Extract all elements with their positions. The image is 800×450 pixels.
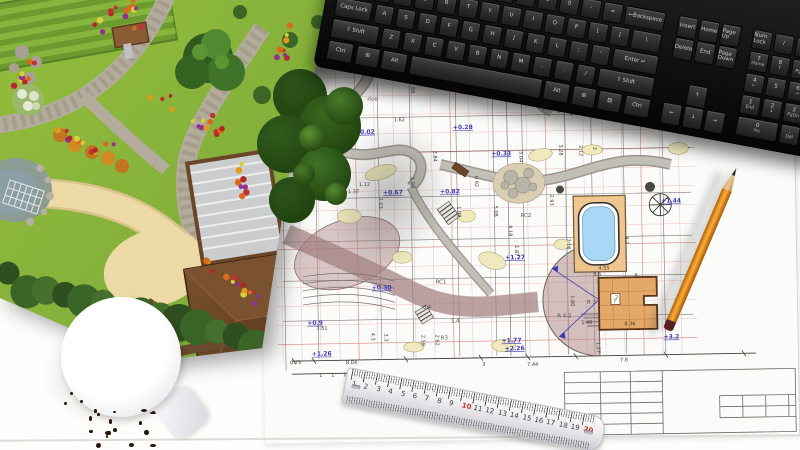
flower bbox=[191, 119, 195, 123]
flower bbox=[256, 294, 260, 298]
flower bbox=[210, 269, 215, 274]
elevation-label: +0.28 bbox=[453, 124, 473, 131]
flower bbox=[252, 301, 257, 306]
keyboard-key: A bbox=[373, 4, 396, 27]
keyboard-key: V bbox=[444, 39, 467, 62]
dimension-label: 7.44 bbox=[527, 362, 538, 368]
room-number: 7 bbox=[613, 298, 616, 304]
ruler-number: 8 bbox=[436, 397, 442, 406]
ruler-number: 3 bbox=[375, 385, 381, 394]
flower bbox=[32, 60, 37, 65]
ruler-number: 5 bbox=[400, 390, 406, 399]
flower bbox=[7, 326, 13, 332]
flower bbox=[196, 124, 200, 128]
keyboard-key: Z bbox=[380, 27, 403, 50]
keyboard-key: ▤ bbox=[596, 90, 623, 113]
flower bbox=[235, 282, 239, 286]
flower bbox=[241, 282, 247, 288]
flower bbox=[19, 71, 24, 76]
dimension-label: 8.04 bbox=[346, 360, 357, 366]
dimension-label: 7.8 bbox=[620, 357, 628, 363]
flower bbox=[160, 97, 164, 101]
keyboard-key: N bbox=[488, 47, 511, 70]
flower bbox=[92, 22, 97, 27]
garden-tree-pale bbox=[12, 84, 44, 116]
keyboard-key: I bbox=[522, 9, 545, 32]
arrow-key: ↓ bbox=[681, 106, 704, 131]
keyboard-key: / bbox=[574, 63, 597, 86]
flower bbox=[19, 333, 25, 339]
dimension-label: 8 bbox=[634, 273, 637, 279]
shrub bbox=[238, 330, 272, 364]
flower bbox=[35, 328, 41, 334]
flower bbox=[100, 29, 105, 34]
numpad-key: Num Lock bbox=[751, 29, 774, 52]
plan-annotation: R 4.2 bbox=[557, 313, 571, 319]
flower bbox=[11, 83, 17, 89]
flower bbox=[92, 147, 97, 152]
keyboard-key: Y bbox=[478, 1, 501, 24]
coffee-ground-speck bbox=[139, 421, 143, 424]
keyboard-key: ; bbox=[567, 40, 590, 63]
flower bbox=[55, 127, 61, 133]
flower bbox=[277, 47, 283, 53]
numpad-key: 7Home bbox=[747, 51, 770, 74]
ruler-number: 13 bbox=[497, 408, 507, 418]
flower bbox=[242, 288, 248, 294]
flower bbox=[285, 33, 289, 37]
dimension-label: 8.7 bbox=[623, 236, 629, 244]
flower bbox=[97, 17, 104, 24]
elevation-label: +1.44 bbox=[661, 197, 681, 204]
keyboard-numpad: Num Lock/*-7Home8↑9PgUp+4←56→+1End2↓3PgD… bbox=[733, 28, 800, 153]
elevation-label: +0.33 bbox=[491, 150, 511, 157]
swimming-pool bbox=[582, 207, 615, 262]
ruler-number: 2 bbox=[363, 382, 369, 391]
flower bbox=[170, 107, 175, 112]
flower bbox=[210, 113, 215, 118]
dimension-label: 8.36 bbox=[624, 321, 635, 327]
ruler-number: 11 bbox=[473, 404, 483, 414]
coffee-ground-speck bbox=[113, 428, 117, 432]
coffee-ground-speck bbox=[144, 430, 148, 435]
flower bbox=[28, 339, 32, 343]
elevation-label: +3.2 bbox=[664, 333, 680, 340]
dimension-label: 50 bbox=[409, 87, 415, 93]
keyboard-key: Alt bbox=[380, 50, 409, 74]
keyboard-key: G bbox=[459, 20, 482, 43]
flower bbox=[203, 257, 210, 264]
flower bbox=[243, 184, 248, 189]
flower bbox=[67, 136, 72, 141]
numpad-key: 3PgDn bbox=[782, 102, 800, 125]
numpad-key: .Del bbox=[778, 124, 800, 147]
ruler-number: 7 bbox=[424, 394, 430, 403]
numpad-key: * bbox=[794, 37, 800, 60]
flower bbox=[9, 328, 14, 333]
elevation-label: +2.26 bbox=[505, 345, 525, 352]
ruler-number: 18 bbox=[558, 420, 568, 430]
ruler-number: 16 bbox=[534, 415, 544, 425]
flower bbox=[3, 322, 9, 328]
dimension-label: 1.80 bbox=[569, 295, 575, 306]
flower bbox=[201, 118, 206, 123]
keyboard-key: - bbox=[580, 0, 603, 20]
dimension-label: 1.27 bbox=[595, 342, 601, 353]
coffee-ground-speck bbox=[106, 435, 108, 439]
flower bbox=[44, 331, 49, 336]
coffee-ground-speck bbox=[129, 443, 134, 447]
keyboard-key: D bbox=[416, 12, 439, 35]
flower bbox=[108, 8, 114, 14]
coffee-ground-speck bbox=[89, 430, 93, 433]
plan-annotation: RC1 bbox=[436, 279, 447, 285]
photo-scene: +0.02+0.28+0.33+0.67+0.82+1.27+1.77+2.26… bbox=[0, 0, 800, 450]
keyboard-key: ' bbox=[589, 44, 612, 67]
keyboard-key: T bbox=[457, 0, 480, 20]
keyboard-key: . bbox=[552, 59, 575, 82]
dimension-label: 1.49 bbox=[581, 320, 592, 326]
elevation-label: +1.77 bbox=[502, 337, 522, 344]
ruler-number: 17 bbox=[546, 418, 556, 428]
dimension-label: 4.3 bbox=[369, 333, 375, 341]
numpad-key: / bbox=[772, 33, 795, 56]
flower bbox=[22, 79, 27, 84]
keyboard-key: Ctrl bbox=[326, 40, 355, 64]
tree-foliage bbox=[325, 87, 363, 125]
keyboard-key: S bbox=[394, 8, 417, 31]
keyboard-key: B bbox=[466, 43, 489, 66]
coffee-ground-speck bbox=[141, 409, 147, 412]
dimension-label: 0.92 bbox=[473, 176, 479, 187]
flower bbox=[223, 274, 230, 281]
flower bbox=[287, 22, 293, 28]
pencil-lead bbox=[732, 167, 738, 176]
pool-area bbox=[573, 195, 626, 272]
numpad-key: 9PgUp bbox=[790, 59, 800, 82]
orange-shrub bbox=[115, 159, 129, 173]
flower bbox=[239, 193, 245, 199]
flower bbox=[169, 94, 173, 98]
flower bbox=[19, 332, 23, 336]
ruler-number: 19 bbox=[570, 423, 580, 433]
dimension-label: 2.12 bbox=[577, 145, 583, 156]
flower bbox=[111, 142, 115, 146]
tree-foliage bbox=[299, 125, 325, 151]
ruler-number: 15 bbox=[521, 413, 531, 423]
keyboard-key: ⊞ bbox=[354, 45, 381, 68]
elevation-label: +0.30 bbox=[372, 284, 392, 291]
flower bbox=[74, 136, 80, 142]
bush bbox=[233, 5, 247, 19]
tree-foliage bbox=[325, 183, 347, 205]
keyboard-key: M bbox=[509, 51, 532, 74]
ruler-number: 14 bbox=[509, 411, 519, 421]
coffee-ground-speck bbox=[64, 402, 67, 405]
keyboard-key: J bbox=[502, 28, 525, 51]
dimension-label: 2 bbox=[591, 147, 597, 150]
coffee-ground-speck bbox=[70, 392, 73, 395]
flower bbox=[65, 129, 69, 133]
flower bbox=[123, 13, 129, 19]
dimension-label: 2.58 bbox=[420, 335, 426, 346]
dimension-label: 1.08 bbox=[455, 206, 461, 217]
coffee-ground-speck bbox=[96, 443, 101, 448]
keyboard-key: Ctrl bbox=[622, 95, 651, 119]
arrow-key: → bbox=[703, 110, 726, 135]
flower bbox=[103, 141, 108, 146]
tree-foliage bbox=[293, 163, 315, 185]
arrow-key: ← bbox=[660, 102, 683, 127]
flower bbox=[232, 275, 238, 281]
keyboard-key: ⊞ bbox=[570, 85, 597, 108]
flower bbox=[9, 322, 16, 329]
coffee-cup bbox=[61, 297, 181, 417]
ruler-number: 6 bbox=[412, 392, 418, 401]
ruler-number: 10 bbox=[460, 401, 471, 411]
keyboard-key: Delete bbox=[672, 37, 695, 62]
keyboard-key: K bbox=[524, 32, 547, 55]
keyboard-key: Page Down bbox=[715, 45, 738, 70]
ruler-number: 4 bbox=[387, 387, 393, 396]
keyboard-key: [ bbox=[586, 21, 609, 44]
flower bbox=[219, 126, 224, 131]
dimension-label: 7.18 bbox=[565, 238, 571, 249]
keyboard-key: End bbox=[693, 41, 716, 66]
keyboard-key: ] bbox=[608, 25, 631, 48]
dimension-label: 2.93 bbox=[548, 195, 554, 206]
dimension-label: 3 bbox=[482, 362, 485, 368]
coffee-ground-speck bbox=[97, 413, 101, 416]
keyboard-key: , bbox=[531, 55, 554, 78]
dimension-label: 2.62 bbox=[434, 335, 440, 346]
plan-annotation: R 3 bbox=[587, 300, 597, 306]
numpad-key: 6→ bbox=[786, 80, 800, 103]
coffee-ground-speck bbox=[109, 419, 112, 424]
flower bbox=[236, 167, 243, 174]
coffee-ground-speck bbox=[80, 400, 83, 403]
keyboard-key: H bbox=[481, 24, 504, 47]
dimension-label: 0.4 bbox=[423, 305, 431, 311]
coffee-ground-speck bbox=[150, 444, 156, 447]
dimension-label: 1.87 bbox=[513, 245, 519, 256]
numpad-key: 8↑ bbox=[768, 55, 791, 78]
flower bbox=[274, 54, 280, 60]
flower bbox=[123, 7, 129, 13]
numpad-key: 5 bbox=[764, 76, 787, 99]
flower bbox=[240, 176, 247, 183]
numpad-key: 2↓ bbox=[760, 98, 783, 121]
keyboard-key: F bbox=[438, 16, 461, 39]
flower bbox=[248, 290, 252, 294]
flower bbox=[134, 7, 138, 11]
numpad-key: 4← bbox=[743, 72, 766, 95]
keyboard-key: U bbox=[500, 5, 523, 28]
flower bbox=[283, 37, 289, 43]
flower bbox=[204, 125, 210, 131]
keyboard-key: X bbox=[401, 31, 424, 54]
coffee-ground-speck bbox=[152, 411, 154, 414]
flower bbox=[239, 184, 244, 189]
flower bbox=[207, 119, 213, 125]
keyboard-key: O bbox=[543, 13, 566, 36]
overhanging-tree bbox=[252, 78, 402, 250]
dimension-label: 3.28 bbox=[557, 144, 563, 155]
flower bbox=[147, 94, 153, 100]
dimension-label: 5.08 bbox=[492, 206, 498, 217]
flower bbox=[114, 5, 118, 9]
flower bbox=[283, 53, 287, 57]
dimension-label: 3.3 bbox=[382, 333, 388, 341]
dimension-label: 1.4 bbox=[451, 318, 459, 324]
flower bbox=[27, 59, 32, 64]
rock-garden bbox=[493, 163, 546, 204]
flower bbox=[239, 162, 244, 167]
keyboard-key: Alt bbox=[542, 80, 571, 104]
keyboard-nav-cluster: InsertHomePage UpDeleteEndPage Down↑←↓→ bbox=[659, 14, 744, 134]
ruler-number: 9 bbox=[448, 399, 454, 408]
keyboard-key: L bbox=[546, 36, 569, 59]
coffee-ground-speck bbox=[105, 431, 111, 435]
dimension-label: 5.6 bbox=[593, 272, 601, 278]
keyboard-key: P bbox=[565, 17, 588, 40]
keyboard-key: C bbox=[423, 35, 446, 58]
keyboard-key: = bbox=[601, 1, 624, 24]
dimension-label: 8.18 bbox=[507, 225, 513, 236]
dimension-label: 3.04 bbox=[517, 151, 523, 162]
numpad-key: 1End bbox=[739, 94, 762, 117]
plan-annotation: R3 bbox=[441, 335, 449, 341]
orange-shrub bbox=[101, 151, 115, 165]
plan-annotation: RC2 bbox=[520, 213, 531, 219]
ruler-number: 12 bbox=[485, 406, 495, 416]
